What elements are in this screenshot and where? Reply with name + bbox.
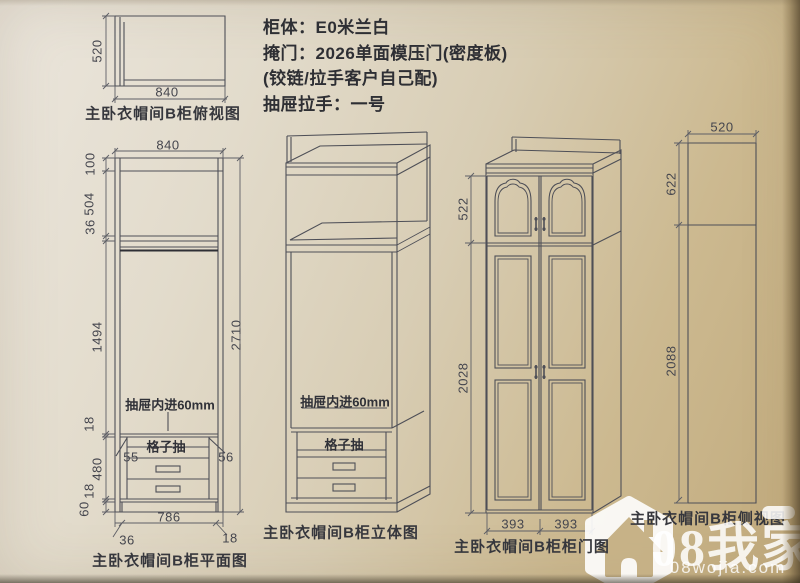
- iso-view-linework: [286, 132, 430, 512]
- front-bottom-width-dim: 786: [157, 510, 180, 525]
- iso-drawer-inset-note: 抽屉内进60mm: [300, 392, 390, 411]
- front-dim-480: 480: [90, 457, 105, 480]
- spec-block: 柜体：E0米兰白 掩门：2026单面模压门(密度板) (铰链/拉手客户自己配) …: [263, 15, 508, 117]
- front-dim-36: 36: [83, 219, 98, 234]
- front-dim-1494: 1494: [90, 322, 105, 353]
- front-bottom-left-dim: 36: [119, 533, 134, 548]
- door-view-dims: [465, 173, 595, 535]
- side-view-dims: [674, 130, 759, 503]
- front-dim-18-upper: 18: [82, 416, 97, 431]
- front-gap-56-dim: 56: [218, 450, 233, 465]
- iso-view-caption: 主卧衣帽间B柜立体图: [263, 522, 419, 543]
- paper-edge-top: [0, 0, 800, 6]
- front-width-dim: 840: [156, 138, 179, 153]
- front-dim-18-lower: 18: [82, 483, 97, 498]
- side-upper-dim: 622: [664, 172, 679, 195]
- door-view-caption: 主卧衣帽间B柜柜门图: [454, 536, 610, 557]
- iso-grid-drawer-label: 格子抽: [324, 435, 363, 454]
- spec-hardware-note: (铰链/拉手客户自己配): [263, 66, 508, 92]
- front-view-caption: 主卧衣帽间B柜平面图: [92, 550, 248, 571]
- drawing-sheet: 柜体：E0米兰白 掩门：2026单面模压门(密度板) (铰链/拉手客户自己配) …: [0, 0, 800, 583]
- front-gap-55-dim: 55: [123, 450, 138, 465]
- top-view-linework: [115, 16, 225, 86]
- side-lower-dim: 2088: [664, 346, 679, 377]
- front-dim-60: 60: [77, 501, 92, 516]
- top-view-depth-dim: 520: [90, 39, 105, 62]
- side-view-linework: [688, 143, 756, 503]
- door-left-width-dim: 393: [501, 517, 524, 532]
- top-view-caption: 主卧衣帽间B柜俯视图: [85, 103, 241, 124]
- door-lower-dim: 2028: [456, 363, 471, 394]
- side-top-dim: 520: [710, 120, 733, 135]
- paper-edge-bottom: [0, 574, 800, 583]
- spec-drawer-handle: 抽屉拉手：一号: [263, 92, 508, 118]
- front-dim-504: 504: [82, 192, 97, 215]
- front-dim-100: 100: [83, 152, 98, 175]
- spec-cabinet-body: 柜体：E0米兰白: [263, 15, 508, 41]
- door-upper-dim: 522: [456, 197, 471, 220]
- door-view-linework: [486, 137, 621, 513]
- top-view-width-dim: 840: [155, 85, 178, 100]
- front-bottom-right-dim: 18: [222, 531, 237, 546]
- paper-edge-right: [782, 0, 800, 583]
- front-total-height-dim: 2710: [229, 320, 244, 351]
- front-grid-drawer-label: 格子抽: [146, 437, 185, 456]
- front-drawer-inset-note: 抽屉内进60mm: [125, 395, 215, 414]
- spec-door-type: 掩门：2026单面模压门(密度板): [263, 41, 508, 67]
- door-right-width-dim: 393: [554, 517, 577, 532]
